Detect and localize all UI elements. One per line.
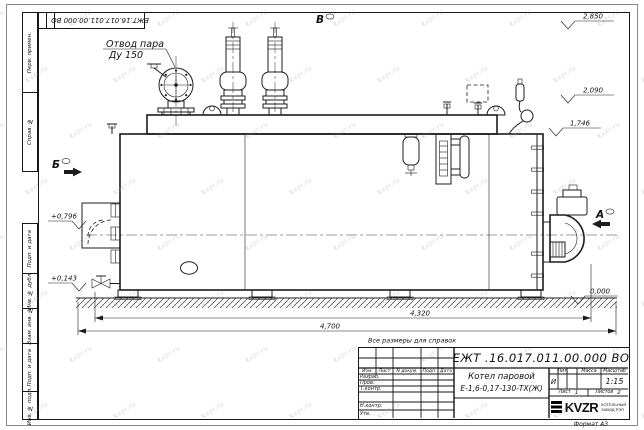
steam-label-line2: Ду 150 (108, 50, 143, 61)
svg-text:2,090: 2,090 (583, 87, 604, 95)
elevation-0143: +0,143 (48, 275, 86, 292)
elevation-2850: 2,850 (561, 13, 614, 30)
manometer-assembly (509, 79, 533, 134)
svg-text:1,746: 1,746 (570, 120, 591, 128)
centerlines (86, 22, 618, 235)
svg-text:+0,796: +0,796 (51, 213, 77, 221)
svg-text:+0,143: +0,143 (51, 275, 77, 283)
view-letter: В (316, 14, 324, 26)
steam-outlet-valve (147, 64, 194, 115)
drawing-canvas: Отвод пара Ду 150 Б В А 2,850 2,090 (0, 0, 644, 430)
view-marker-b: Б (52, 158, 82, 176)
safety-valve (220, 28, 246, 115)
lifting-lug (487, 106, 505, 115)
burner-unit (543, 185, 587, 262)
safety-valve (262, 28, 288, 115)
water-level-gauge (436, 134, 469, 184)
separator-vessel (403, 134, 419, 176)
svg-text:4,700: 4,700 (320, 323, 341, 331)
svg-text:4,320: 4,320 (410, 310, 431, 318)
view-letter: Б (52, 159, 60, 171)
view-marker-v: В (316, 14, 334, 26)
dimension-4320: 4,320 (95, 264, 591, 322)
manhole (181, 262, 198, 274)
svg-text:2,850: 2,850 (583, 13, 604, 21)
reference-note: Все размеры для справок (368, 337, 456, 345)
drain-valve-bottom-left (92, 276, 120, 288)
drum-top-fittings (443, 85, 488, 115)
elevation-0796: +0,796 (48, 213, 86, 230)
steam-label-line1: Отвод пара (106, 39, 164, 50)
front-box (82, 203, 120, 263)
elevation-2090: 2,090 (561, 87, 614, 104)
lifting-lug (203, 106, 221, 115)
elevation-1746: 1,746 (549, 120, 601, 137)
ground-hatching (76, 298, 617, 308)
svg-text:0,000: 0,000 (590, 288, 611, 296)
boiler-shell (120, 115, 544, 290)
small-valve-left-top (107, 124, 117, 134)
view-marker-a: А (592, 209, 614, 229)
steam-outlet-label: Отвод пара Ду 150 (103, 39, 175, 67)
drawing-sheet: ЕЖТ.16.017.011.00.000 ВО Перв. примен. С… (0, 0, 644, 430)
view-letter: А (595, 209, 604, 221)
